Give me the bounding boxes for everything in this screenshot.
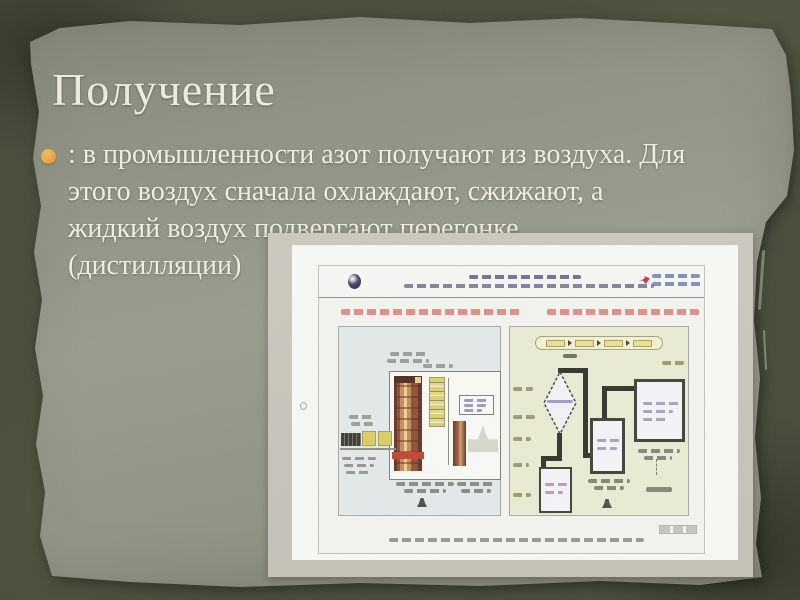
status-boxes: [659, 525, 697, 534]
pipe-segment: [602, 386, 636, 391]
blurred-label: [464, 404, 486, 407]
equipment-block-yellow: [362, 431, 376, 446]
arrow-right-icon: [626, 340, 630, 346]
blurred-label: [513, 387, 533, 391]
dashed-flow-line: [656, 459, 657, 475]
blurred-label: [662, 361, 684, 365]
blurred-label: [342, 457, 376, 460]
process-sequence-strip: [535, 336, 663, 350]
process-step-box: [633, 340, 652, 347]
pipe-segment: [602, 386, 607, 421]
photo-white-mat: [292, 245, 738, 560]
blurred-label: [597, 447, 617, 450]
blurred-figure-caption: [389, 538, 644, 542]
rectification-column: [394, 376, 422, 471]
blurred-label: [545, 483, 567, 486]
blurred-header-subtitle-line: [404, 284, 654, 288]
university-logo-icon: [348, 274, 361, 289]
reactor-box-right: [634, 379, 685, 442]
embedded-diagram-photo: [268, 233, 753, 577]
blurred-logo-text: [652, 274, 700, 278]
blurred-left-heading: [341, 309, 521, 315]
left-diagram-panel: [338, 326, 501, 516]
inner-slide-screenshot: [318, 265, 705, 554]
arrow-right-icon: [597, 340, 601, 346]
secondary-column: [453, 421, 466, 466]
process-step-box: [604, 340, 623, 347]
blurred-label: [643, 418, 667, 421]
body-line-2: этого воздух сначала охлаждают, сжижают,…: [68, 173, 685, 210]
blurred-label: [346, 471, 372, 474]
blurred-caption: [588, 479, 630, 483]
blurred-header-title-line: [469, 275, 581, 279]
partner-logo-icon: [639, 276, 650, 284]
blurred-right-heading: [547, 309, 699, 315]
bullet-marker: [41, 149, 56, 164]
blurred-label: [563, 354, 577, 358]
column-apparatus-box: [389, 371, 501, 480]
blurred-caption: [457, 482, 495, 486]
blurred-label: [643, 410, 673, 413]
body-line-1: : в промышленности азот получают из возд…: [68, 136, 685, 173]
blurred-label: [513, 463, 529, 467]
presentation-slide: Получение : в промышленности азот получа…: [0, 0, 800, 600]
process-step-box: [546, 340, 565, 347]
blurred-label: [349, 415, 375, 419]
blurred-label: [545, 491, 563, 494]
blurred-caption: [461, 489, 491, 493]
blurred-caption: [638, 449, 680, 453]
condenser-tank: [468, 424, 498, 452]
photo-artifact-mark: [300, 402, 307, 410]
tiny-pictogram: [602, 499, 612, 508]
arrow-right-icon: [568, 340, 572, 346]
slide-title: Получение: [52, 64, 276, 116]
blurred-label: [390, 352, 426, 356]
column-corner-highlight: [415, 377, 421, 383]
column-red-band: [392, 452, 424, 459]
blurred-label: [423, 364, 453, 368]
blurred-label: [643, 402, 679, 405]
pipe-line: [340, 448, 396, 450]
mixer-diamond-shape: [543, 371, 577, 435]
tiny-pictogram: [417, 498, 427, 507]
right-diagram-panel: [509, 326, 689, 516]
pipe-segment: [583, 368, 588, 458]
blurred-label: [513, 493, 531, 497]
heat-exchanger-stack: [429, 377, 445, 427]
blurred-logo-text: [652, 282, 702, 286]
blurred-label: [344, 464, 374, 467]
blurred-label: [513, 415, 535, 419]
blurred-formula-label: [646, 487, 672, 492]
reactor-box-center: [590, 418, 625, 474]
equipment-block-yellow: [378, 431, 392, 446]
blurred-caption: [594, 486, 624, 490]
reactor-box-bottom-left: [539, 467, 572, 513]
blurred-label: [597, 439, 621, 442]
blurred-label: [513, 437, 531, 441]
connector-line: [448, 378, 449, 465]
inner-slide-header: [319, 267, 704, 298]
blurred-caption: [404, 489, 446, 493]
blurred-caption: [644, 456, 672, 460]
blurred-label: [351, 422, 373, 426]
compressor-block: [341, 433, 361, 446]
diagram-label-box: [459, 395, 494, 415]
process-step-box: [575, 340, 594, 347]
blurred-caption: [396, 482, 454, 486]
blurred-label: [464, 399, 490, 402]
blurred-label: [387, 359, 429, 363]
blurred-label: [547, 400, 573, 403]
blurred-label: [464, 409, 482, 412]
